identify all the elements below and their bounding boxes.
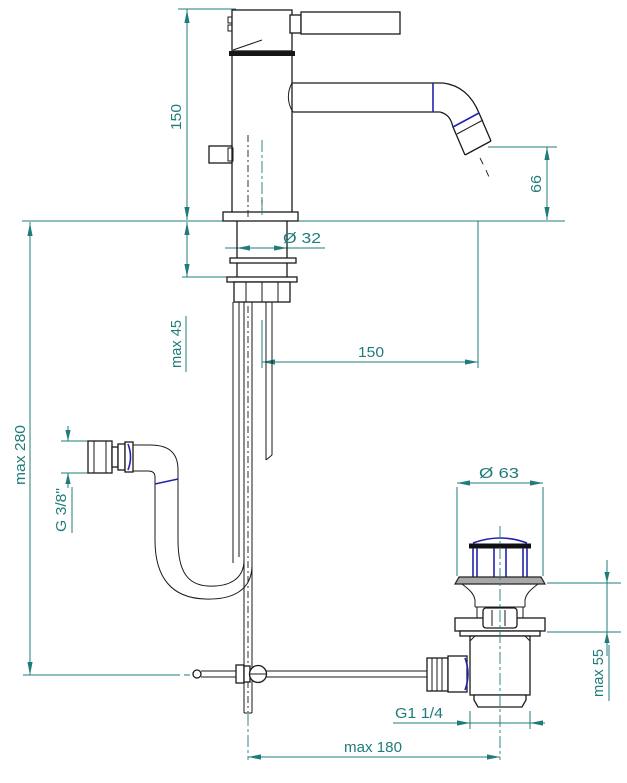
supply-tube-b-cut — [266, 455, 272, 460]
dim-label-drain-clamp: max 55 — [590, 649, 607, 697]
dim-label-hose-thread: G 3/8" — [53, 488, 70, 532]
neck-right — [525, 584, 538, 607]
hose-ferrule-band — [155, 479, 178, 484]
dim-label-drain-thread: G1 1/4 — [395, 705, 443, 722]
hose-collar-2 — [118, 444, 125, 470]
dim-label-rod-reach: max 180 — [344, 739, 402, 756]
outlet-axis-dash-1 — [480, 158, 484, 166]
pop-up-rod — [193, 302, 468, 713]
dim-label-spout-height: 66 — [528, 175, 545, 193]
cap-joint-band — [229, 51, 295, 56]
dim-label-plug-diameter: Ø 63 — [479, 465, 519, 482]
neck-left — [462, 584, 475, 607]
dim-label-hose-length: max 280 — [12, 425, 29, 485]
outlet-axis-dash-2 — [486, 170, 489, 177]
drawing-page: 150 66 Ø 32 max 45 150 max 280 G 3/8" Ø … — [0, 0, 627, 783]
handle-connector — [290, 15, 301, 33]
horseshoe-washer — [227, 277, 297, 282]
hose-wall-inner — [133, 445, 244, 586]
spout-outlet-face — [465, 141, 491, 155]
dim-label-deck-thickness: max 45 — [168, 320, 185, 368]
pivot-cylinder — [448, 656, 467, 692]
supply-hose — [88, 441, 252, 599]
hose-collar-1 — [112, 447, 118, 467]
dim-label-spout-reach: 150 — [358, 344, 384, 361]
spout-elbow-inner — [440, 112, 465, 155]
hose-hex-nut — [88, 441, 112, 473]
rod-clamp-left — [236, 665, 244, 683]
dim-label-shank-diameter: Ø 32 — [283, 230, 321, 247]
rod-ball-tip — [193, 670, 201, 678]
mounting-shank — [227, 221, 297, 563]
dimension-lines — [22, 9, 621, 760]
side-boss — [209, 146, 232, 163]
gasket-washer — [230, 258, 296, 263]
faucet — [209, 10, 491, 221]
waste-body — [470, 636, 530, 695]
base-flange — [223, 212, 298, 221]
dim-label-body-height: 150 — [168, 104, 185, 130]
technical-drawing-canvas: 150 66 Ø 32 max 45 150 max 280 G 3/8" Ø … — [0, 0, 627, 783]
handle-grip — [301, 12, 400, 34]
aerator-joint-band — [453, 113, 479, 127]
faucet-cap — [232, 10, 292, 51]
spout-elbow-outer — [443, 83, 491, 141]
